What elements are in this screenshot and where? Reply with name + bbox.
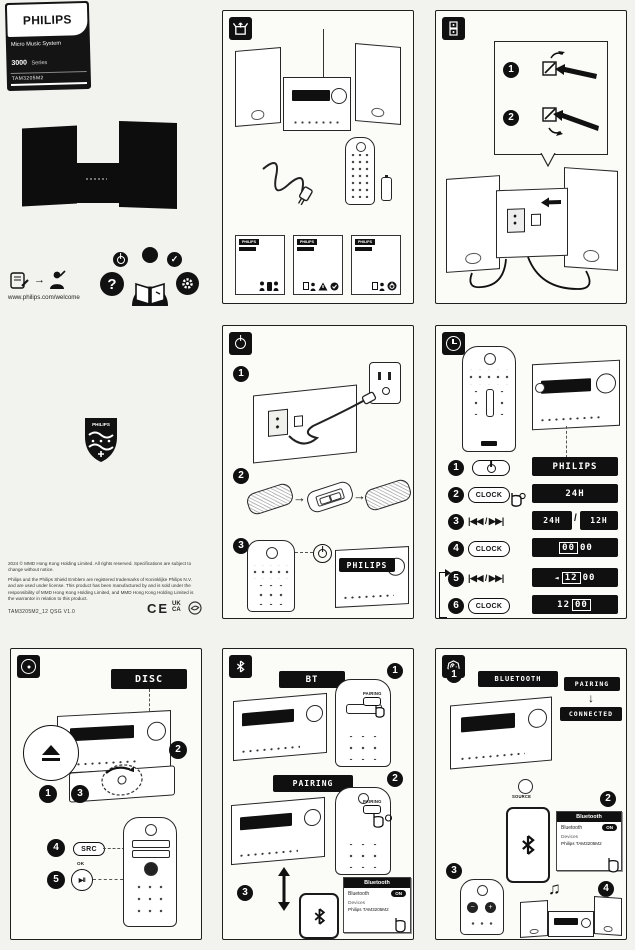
panel-disc: DISC 1 3 2 4 SRC 5 OK ▶II — [10, 648, 202, 940]
tap-hand-icon — [391, 917, 407, 935]
eject-button-callout — [23, 725, 79, 781]
eject-icon — [42, 745, 60, 755]
pairing-label: PAIRING — [363, 799, 382, 804]
phone-with-bluetooth — [299, 893, 339, 939]
power-button-callout — [313, 544, 332, 563]
step-2-badge: 2 — [387, 771, 403, 787]
check-badge-icon: ✓ — [167, 252, 182, 267]
bluetooth-label: Bluetooth — [561, 825, 582, 831]
display-step3b: 12H — [580, 511, 618, 530]
display-bluetooth: BLUETOOTH — [478, 671, 558, 687]
step-3-badge: 3 — [237, 885, 253, 901]
devices-label: Devices — [557, 833, 621, 840]
copyright-text: 2024 © MMD Hong Kong Holding Limited. Al… — [8, 561, 196, 574]
tap-hand-icon — [604, 857, 620, 875]
clock-icon — [442, 332, 465, 355]
callout-pointer — [540, 153, 556, 167]
display-step5: ◄1200 — [532, 568, 618, 587]
bluetooth-toggle: ON — [391, 890, 406, 897]
support-power-icon — [387, 281, 397, 291]
play-pause-button: ▶II — [71, 869, 93, 891]
pairing-label: PAIRING — [363, 691, 382, 696]
repeat-arrowhead — [445, 569, 451, 577]
branding-block: PHILIPS Micro Music System 3000 Series T… — [0, 0, 210, 315]
terminal-wire-step2 — [525, 98, 601, 146]
mini-right-speaker — [594, 896, 622, 936]
green-dot-icon — [188, 601, 202, 615]
power-button — [472, 460, 510, 476]
quick-start-guide-page: { "branding": { "logo": "PHILIPS", "prod… — [0, 0, 635, 950]
display-disc: DISC — [111, 669, 187, 689]
down-arrow-icon: ↓ — [588, 691, 594, 705]
step-6-badge: 6 — [448, 598, 464, 614]
step-1-badge: 1 — [448, 460, 464, 476]
source-label: SOURCE — [512, 794, 531, 799]
remote-disc — [123, 817, 177, 927]
right-speaker-drawing — [355, 43, 401, 125]
ca-mark-line: CA — [172, 607, 181, 613]
leaflet-logo: PHILIPS — [239, 239, 259, 245]
power-badge-icon — [113, 252, 128, 267]
leaflet-logo: PHILIPS — [355, 239, 375, 245]
qsg-code: TAM3205M2_12 QSG V1.0 — [8, 609, 75, 615]
power-cord-path — [283, 384, 393, 454]
leaflet-logo: PHILIPS — [297, 239, 317, 245]
power-icon — [229, 332, 252, 355]
display-philips: PHILIPS — [339, 558, 395, 572]
leaflet-warranty: PHILIPS — [351, 235, 401, 295]
bluetooth-label: Bluetooth — [348, 891, 369, 897]
ok-label: OK — [77, 861, 84, 866]
panel-stream-music: 1 BLUETOOTH PAIRING ↓ CONNECTED SOURCE 2… — [435, 648, 627, 940]
press-hold-hand-icon — [369, 813, 393, 831]
legal-block: PHILIPS 2024 © MMD Hong Kong Holding Lim… — [0, 325, 210, 620]
disc-icon — [17, 655, 40, 678]
series-number: 3000 — [11, 60, 27, 67]
remote-drawing — [345, 137, 375, 205]
mini-unit — [548, 911, 594, 937]
fm-antenna-drawing — [323, 29, 324, 77]
reading-person-figure — [126, 246, 174, 306]
clock-button: CLOCK — [468, 541, 510, 557]
step-1-badge: 1 — [387, 663, 403, 679]
remote-overview — [462, 346, 516, 452]
step-2-badge: 2 — [169, 741, 187, 759]
right-speaker-photo — [119, 121, 177, 209]
speaker-terminal-icon — [442, 17, 465, 40]
bluetooth-toggle: ON — [602, 824, 617, 831]
remote-volume: − + — [460, 879, 504, 935]
series-word: Series — [31, 60, 47, 66]
panel-speaker-connection: 1 2 — [435, 10, 627, 304]
remote-front — [247, 540, 295, 612]
terminal-callout: 1 2 — [494, 41, 608, 155]
remote-battery-step-a — [245, 481, 296, 516]
unit-overview — [532, 360, 620, 431]
updown-arrow-icon — [277, 867, 291, 911]
unit-stream — [450, 697, 552, 770]
step-1-badge: 1 — [446, 667, 462, 683]
alternate-slash: / — [574, 513, 577, 524]
step-1-badge: 1 — [233, 366, 249, 382]
display-step1: PHILIPS — [532, 457, 618, 476]
arrow-right-icon: → — [34, 274, 45, 286]
ce-mark: CE — [147, 601, 169, 616]
doc-person-icon — [303, 282, 316, 291]
skip-buttons: |◀◀ / ▶▶| — [468, 573, 504, 584]
step-1-badge: 1 — [39, 785, 57, 803]
display-bt: BT — [279, 671, 345, 688]
terminal-wire-step1 — [525, 48, 601, 92]
press-hold-hand-icon — [506, 492, 526, 510]
step-5-badge: 5 — [47, 871, 65, 889]
question-badge-icon: ? — [100, 272, 124, 296]
product-name: Micro Music System — [11, 40, 86, 48]
model-number: TAM3205M2 — [12, 74, 89, 82]
source-button: SRC — [73, 842, 105, 856]
music-note-icon: ♫ — [548, 879, 561, 899]
remote-battery-step-b — [305, 479, 356, 514]
display-step3a: 24H — [532, 511, 572, 530]
philips-logo: PHILIPS — [7, 3, 88, 37]
gear-badge-icon — [176, 272, 199, 295]
panel-bluetooth: 1 BT PAIRING 2 PAIRING PAIRING 3 Bluetoo… — [222, 648, 414, 940]
phone-with-bluetooth — [506, 807, 550, 883]
main-unit-drawing — [283, 77, 351, 131]
doc-person-icon — [372, 282, 385, 291]
display-step2: 24H — [532, 484, 618, 503]
arrow-right-icon: → — [293, 490, 306, 505]
website-link: www.philips.com/welcome — [8, 294, 80, 301]
step-3-badge: 3 — [448, 514, 464, 530]
device-list-item: Philips TAM3205M2 — [344, 906, 410, 913]
mini-left-speaker — [520, 900, 548, 938]
skip-buttons: |◀◀ / ▶▶| — [468, 516, 504, 527]
step-3-badge: 3 — [446, 863, 462, 879]
warning-triangle-icon — [318, 282, 328, 291]
unboxing-icon — [229, 17, 252, 40]
speaker-wires — [446, 211, 618, 295]
step-4-badge: 4 — [598, 881, 614, 897]
shield-wordmark: PHILIPS — [92, 422, 110, 427]
devices-label: Devices — [344, 899, 410, 906]
remote-battery-step-c — [363, 477, 414, 512]
panel-power: 1 2 → → 3 PHILIPS — [222, 325, 414, 619]
source-knob — [518, 779, 533, 794]
step-4-badge: 4 — [448, 541, 464, 557]
registered-user-icon — [48, 270, 66, 290]
power-cable-drawing — [252, 141, 327, 211]
volume-down-button: − — [467, 902, 478, 913]
product-label-card: PHILIPS Micro Music System 3000 Series T… — [5, 1, 91, 91]
unit-front — [335, 546, 409, 608]
left-speaker-drawing — [235, 47, 281, 127]
battery-drawing — [381, 177, 392, 201]
step-2-badge: 2 — [600, 791, 616, 807]
philips-shield-logo: PHILIPS — [84, 417, 118, 463]
repeat-bracket — [439, 572, 447, 618]
settings-title: Bluetooth — [557, 812, 621, 822]
clock-button: CLOCK — [468, 598, 510, 614]
step-2-badge: 2 — [233, 468, 249, 484]
step-2-badge: 2 — [448, 487, 464, 503]
settings-title: Bluetooth — [344, 878, 410, 888]
display-step6: 1200 — [532, 595, 618, 614]
bluetooth-icon — [229, 655, 252, 678]
unit-bt-2 — [231, 797, 325, 865]
display-pairing-seq: PAIRING — [564, 677, 620, 691]
step-3-badge: 3 — [71, 785, 89, 803]
trademark-text: Philips and the Philips Shield Emblem ar… — [8, 577, 196, 603]
unit-bt-1 — [233, 693, 327, 761]
clock-button: CLOCK — [468, 487, 510, 503]
step-1-badge: 1 — [503, 62, 519, 78]
step-2-badge: 2 — [503, 110, 519, 126]
device-list-item: Philips TAM3205M2 — [557, 840, 621, 847]
leaflet-quick-start: PHILIPS — [235, 235, 285, 295]
volume-up-button: + — [485, 902, 496, 913]
ukca-mark: UK CA — [172, 601, 181, 613]
left-speaker-photo — [22, 126, 77, 207]
leaflet-safety: PHILIPS — [293, 235, 343, 295]
speakers-people-icon — [259, 281, 281, 291]
main-unit-photo — [77, 163, 119, 203]
display-step4: 0000 — [532, 538, 618, 557]
step-4-badge: 4 — [47, 839, 65, 857]
panel-unboxing: PHILIPS PHILIPS PHILIPS — [222, 10, 414, 304]
approved-check-icon — [330, 282, 339, 291]
panel-clock: 1 PHILIPS 2 CLOCK 24H 3 |◀◀ / ▶▶| 24H / … — [435, 325, 627, 619]
register-icon — [10, 272, 30, 290]
press-hand-icon — [371, 705, 387, 721]
display-connected: CONNECTED — [560, 707, 622, 721]
